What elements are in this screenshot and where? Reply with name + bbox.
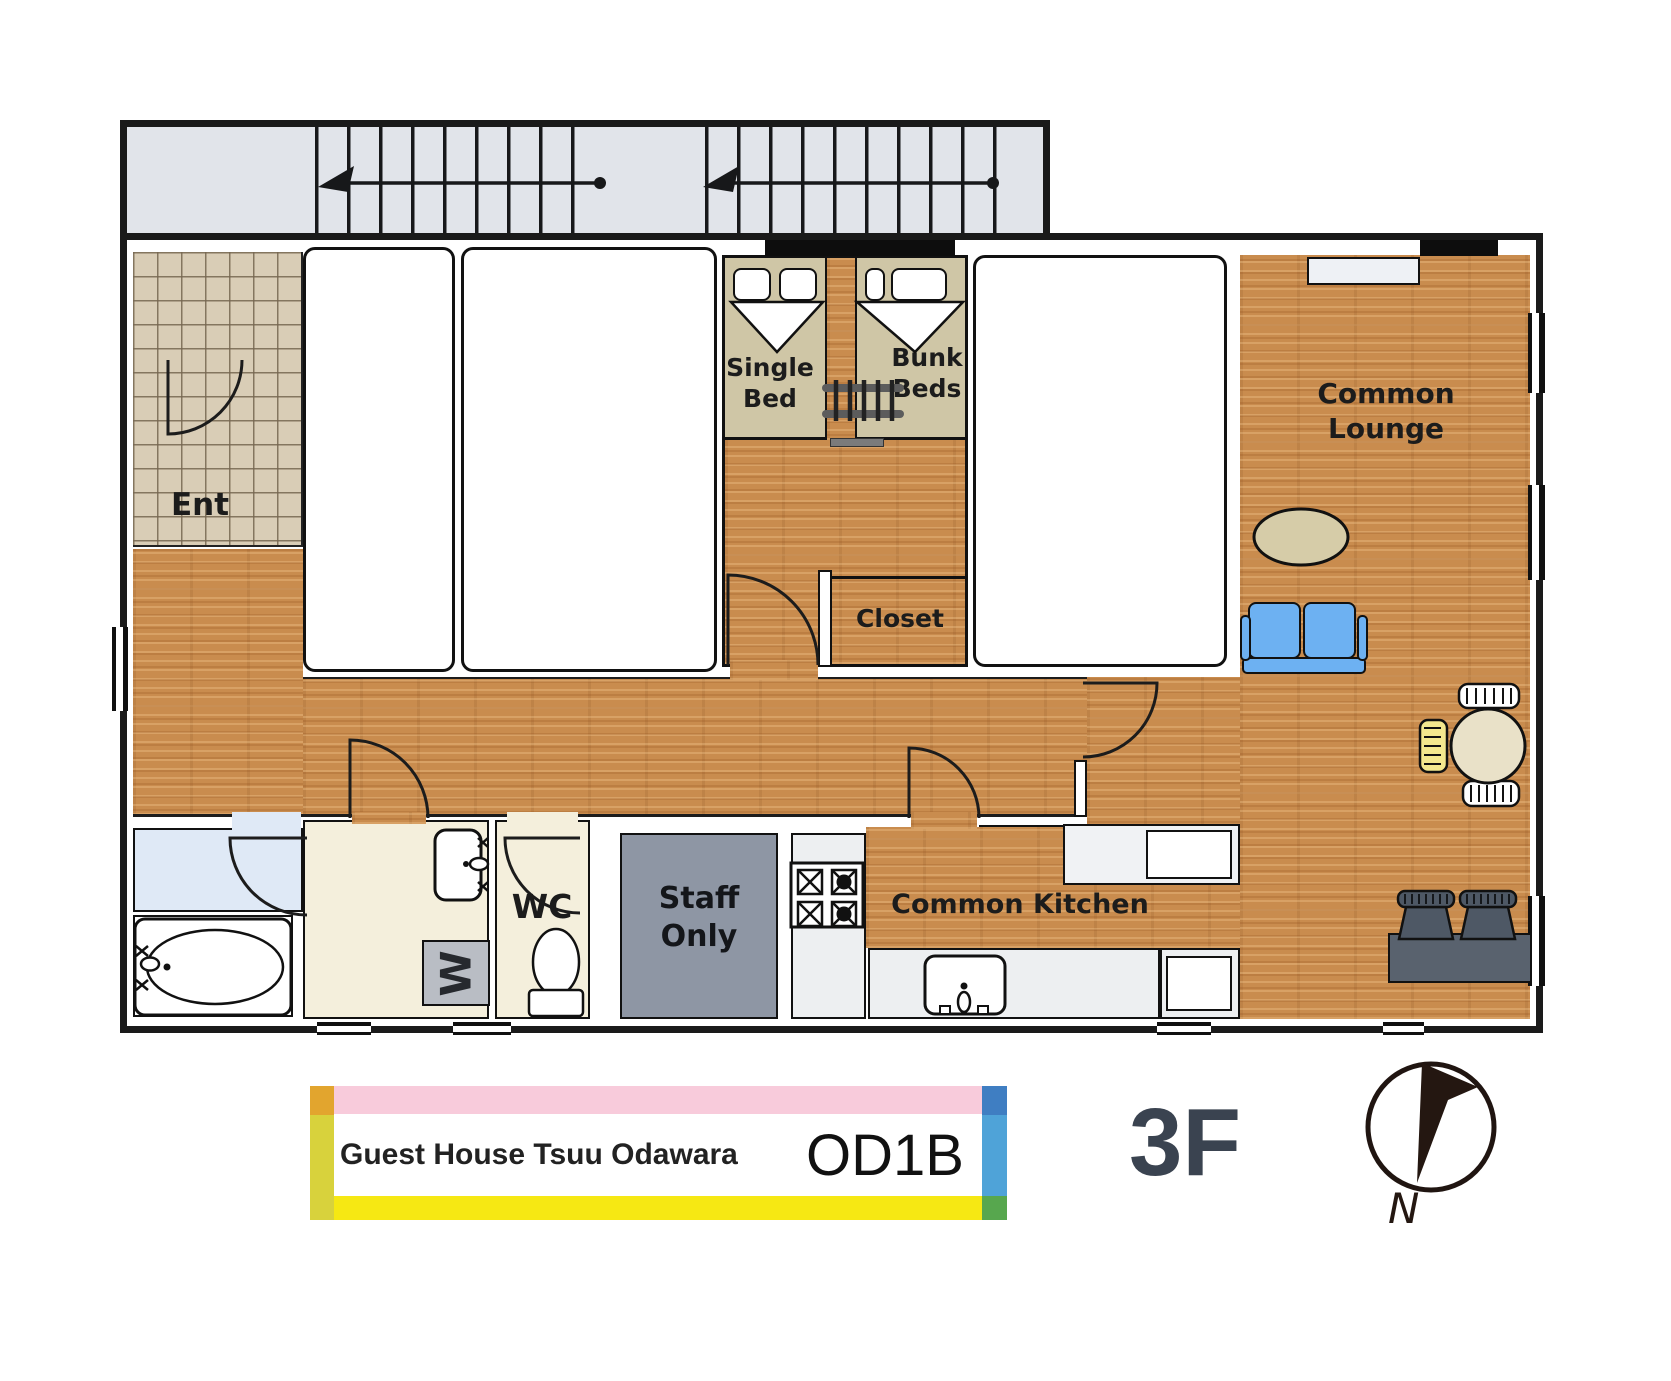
sliding-door-lounge [1420, 240, 1498, 256]
label-closet: Closet [843, 603, 957, 634]
window-right-upper [1528, 313, 1545, 393]
title-plate: Guest House Tsuu Odawara OD1B [310, 1086, 1007, 1220]
floor-indicator: 3F [1090, 1088, 1280, 1198]
corridor-left [133, 549, 303, 815]
counter-bottom [868, 948, 1160, 1019]
doorway-bunkroom [730, 660, 818, 680]
sofa-base [1242, 657, 1366, 674]
washing-machine: W [422, 940, 490, 1006]
label-bunk-beds-line2: Beds [893, 374, 962, 403]
stairwell [120, 120, 1050, 240]
doorway-kitchen [911, 812, 977, 829]
lounge-approach-floor [1087, 677, 1240, 827]
label-single-bed-line2: Bed [743, 384, 797, 413]
floor-plan: W Ent Single Bed Bunk Beds Closet Common… [0, 0, 1671, 1381]
window-bottom-1 [317, 1022, 371, 1035]
stair-treads-flight1 [315, 127, 603, 233]
counter-top-inner [1146, 830, 1232, 879]
kitchen-top-wall [979, 817, 1063, 827]
lounge-alcove [1307, 257, 1420, 285]
window-bottom-2 [453, 1022, 511, 1035]
label-staff-line1: Staff [659, 881, 740, 916]
washer-label: W [431, 950, 480, 996]
bunk-base-step [830, 438, 884, 447]
compass-north-label: N [1388, 1184, 1448, 1232]
closet-wall [818, 570, 832, 667]
plate-unit-code: OD1B [790, 1114, 980, 1196]
closet-top-wall [832, 576, 965, 579]
counter-column [791, 833, 866, 1019]
hallway [303, 677, 1089, 817]
window-left-wall [112, 627, 128, 711]
label-bunk-beds-line1: Bunk [891, 343, 962, 372]
window-bottom-4 [1383, 1022, 1424, 1035]
window-right-middle [1528, 485, 1545, 580]
sofa-arm-left [1240, 615, 1251, 661]
compass-icon [1368, 1063, 1494, 1190]
plate-left-orange [310, 1086, 334, 1115]
label-entrance: Ent [150, 486, 250, 525]
label-staff-line2: Only [661, 919, 738, 954]
label-common-lounge: Common Lounge [1258, 376, 1514, 446]
plate-bottom-band [334, 1196, 982, 1220]
sofa-cushion-right [1303, 602, 1356, 659]
compass-needle-icon [1417, 1063, 1478, 1183]
plate-right-darkblue [982, 1086, 1007, 1115]
sofa-arm-right [1357, 615, 1368, 661]
counter-bottom-right-inner [1166, 956, 1232, 1011]
stair-treads-flight2 [705, 127, 997, 233]
label-bunk-beds: Bunk Beds [875, 342, 979, 405]
bunk-divider-board [825, 258, 857, 440]
label-single-bed: Single Bed [713, 352, 827, 415]
plate-building-name: Guest House Tsuu Odawara [340, 1114, 785, 1196]
guest-room-c [973, 255, 1227, 667]
doorway-wc [507, 812, 578, 823]
doorway-washroom [352, 812, 426, 824]
pillow [891, 268, 947, 301]
window-bottom-3 [1157, 1022, 1211, 1035]
desk [1388, 933, 1532, 983]
pillow [733, 268, 771, 301]
sofa-cushion-left [1248, 602, 1301, 659]
room-bathtub [133, 915, 293, 1017]
guest-room-b [461, 247, 717, 672]
label-wc: WC [500, 886, 584, 927]
plate-top-band [334, 1086, 982, 1114]
sliding-door-bunkroom [765, 240, 955, 256]
label-common-kitchen: Common Kitchen [880, 888, 1160, 922]
guest-room-a [303, 247, 455, 672]
label-single-bed-line1: Single [726, 353, 814, 382]
pillow [865, 268, 885, 301]
kitchen-wall-stub [1074, 760, 1087, 817]
plate-right-green [982, 1196, 1007, 1220]
doorway-bath-prep [232, 812, 301, 831]
label-staff-only: Staff Only [625, 880, 773, 955]
room-bath-prep [133, 828, 303, 912]
pillow [779, 268, 817, 301]
